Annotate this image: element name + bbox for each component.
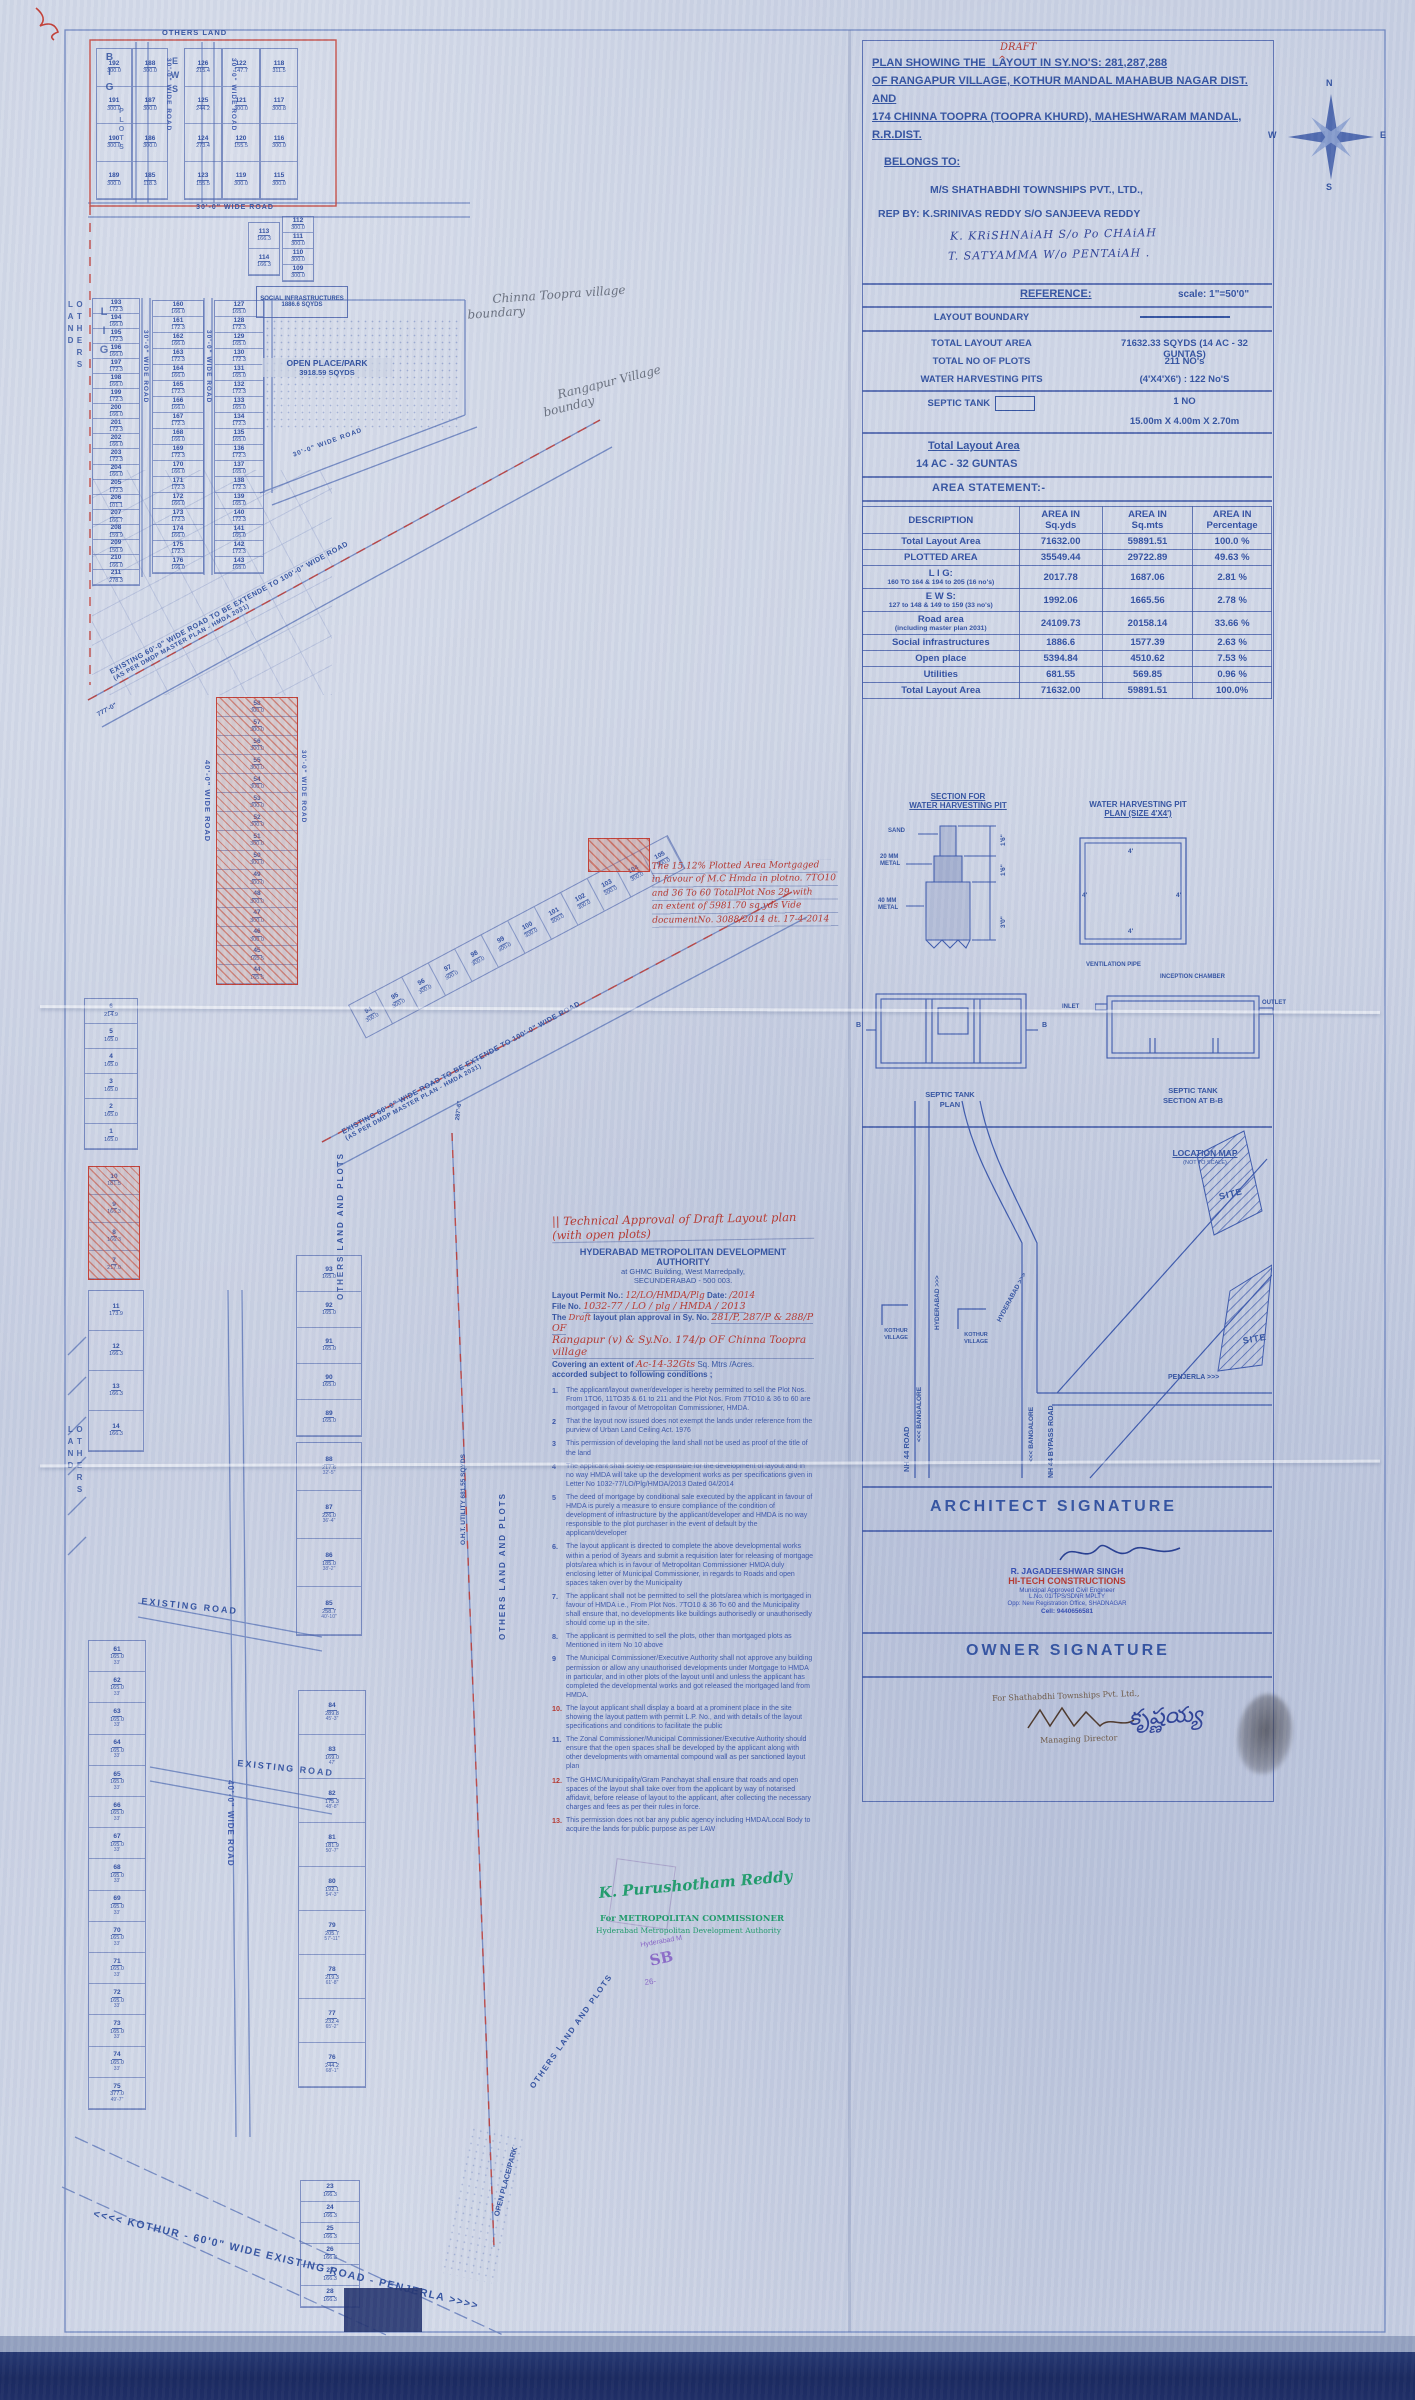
- cell-sqyds: 1992.06: [1019, 589, 1102, 612]
- plot-cell-mortgaged: 55300.0: [217, 755, 297, 774]
- plot-cell: 125244.2: [185, 87, 221, 125]
- stamp-address: Opp: New Registration Office, SHADNAGAR: [962, 1601, 1172, 1608]
- dim-1-6-a: 1'6": [1000, 834, 1007, 846]
- whp-plan-title: WATER HARVESTING PITPLAN (SIZE 4'X4'): [1058, 800, 1218, 818]
- plot-cell: 162166.0: [153, 333, 203, 349]
- dim-1-6-b: 1'6": [1000, 864, 1007, 876]
- plot-cell: 25166.3: [301, 2223, 359, 2244]
- hmda-condition-item: 5 The deed of mortgage by conditional sa…: [552, 1493, 814, 1538]
- whp-section-title: SECTION FORWATER HARVESTING PIT: [878, 792, 1038, 810]
- plot-strip-top3: 126215.4125244.2124273.4123155.5: [184, 48, 222, 200]
- stamp-name: R. JAGADEESHWAR SINGH: [962, 1566, 1172, 1576]
- plot-cell: 81181.950'-7": [299, 1823, 365, 1867]
- social-infrastructure-block: SOCIAL INFRASTRUCTURES 1886.6 SQYDS: [256, 286, 348, 318]
- plot-cell: 93165.0: [297, 1256, 361, 1292]
- plot-cell: 77232.465'-2": [299, 1999, 365, 2043]
- plot-cell-mortgaged: 10181.5: [89, 1167, 139, 1195]
- plot-cell-mortgaged: 58300.0: [217, 698, 297, 717]
- owner-signature-mark: [1022, 1702, 1142, 1736]
- whp-dim-top: 4': [1128, 848, 1133, 855]
- ref-line-2: [862, 306, 1272, 308]
- plot-cell: 68165.033': [89, 1859, 145, 1890]
- as-line-2: [862, 500, 1272, 502]
- others-land-top-label: OTHERS LAND: [162, 28, 227, 37]
- dark-block-bottom: [344, 2288, 422, 2332]
- cell-sqmts: 4510.62: [1102, 651, 1192, 667]
- plot-cell-mortgaged: 51300.0: [217, 831, 297, 850]
- ventilation-pipe-label: VENTILATION PIPE: [1086, 962, 1141, 968]
- cell-sqmts: 569.85: [1102, 667, 1192, 683]
- condition-number: 9: [552, 1654, 566, 1699]
- hmda-conditions-intro: accorded subject to following conditions…: [552, 1370, 814, 1379]
- area-statement-heading: AREA STATEMENT:-: [932, 482, 1046, 494]
- cell-sqyds: 24109.73: [1019, 612, 1102, 635]
- total-layout-area-subtitle: Total Layout Area: [928, 440, 1020, 452]
- utility-label: O.H.T. UTILITY 681.55 SQYDS: [460, 1370, 467, 1545]
- plot-cell: 73165.033': [89, 2015, 145, 2046]
- ref-line-4: [862, 390, 1272, 392]
- cell-sqmts: 1665.56: [1102, 589, 1192, 612]
- condition-number: 11.: [552, 1735, 566, 1771]
- plot-cell: 136172.3: [215, 445, 263, 461]
- park-value: 3918.59 SQYDS: [262, 368, 392, 377]
- plot-cell: 128172.3: [215, 317, 263, 333]
- plot-cell: 75377.049'-7": [89, 2078, 145, 2109]
- ref-row-whp: WATER HARVESTING PITS(4'X4'X6') : 122 No…: [864, 374, 1270, 385]
- hmda-condition-item: 1. The applicant/layout owner/developer …: [552, 1386, 814, 1413]
- table-row: Total Layout Area 71632.00 59891.51 100.…: [863, 683, 1272, 699]
- condition-number: 8.: [552, 1632, 566, 1650]
- compass-e: E: [1380, 130, 1386, 140]
- plot-cell: 112300.0: [283, 217, 313, 233]
- plot-cell: 116300.0: [261, 124, 297, 162]
- architect-signature-mark: [1052, 1536, 1192, 1568]
- plot-cell: 71165.033': [89, 1953, 145, 1984]
- architect-stamp: R. JAGADEESHWAR SINGH HI-TECH CONSTRUCTI…: [962, 1566, 1172, 1616]
- septic-section-drawing: [1095, 978, 1273, 1078]
- condition-text: This permission of developing the land s…: [566, 1439, 814, 1457]
- extent-units: Sq. Mtrs /Acres.: [697, 1360, 754, 1369]
- road-40-label-bottom: 40'-0" WIDE ROAD: [226, 1780, 235, 2000]
- condition-number: 10.: [552, 1704, 566, 1731]
- road-40-label: 40'-0" WIDE ROAD: [203, 760, 212, 930]
- plot-cell: 129165.0: [215, 333, 263, 349]
- plot-cell-mortgaged: 8166.3: [89, 1223, 139, 1251]
- arch-line-bottom: [862, 1530, 1272, 1532]
- plot-cell: 119300.0: [223, 162, 259, 200]
- cell-description: L I G:160 TO 164 & 194 to 205 (16 no's): [863, 566, 1020, 589]
- plot-cell: 118311.5: [261, 49, 297, 87]
- condition-number: 5: [552, 1493, 566, 1538]
- plot-cell-mortgaged: 49300.0: [217, 870, 297, 889]
- cell-sqmts: 1577.39: [1102, 635, 1192, 651]
- plot-cell: 90165.0: [297, 1364, 361, 1400]
- hmda-condition-item: 12. The GHMC/Municipality/Gram Panchayat…: [552, 1776, 814, 1812]
- condition-text: The deed of mortgage by conditional sale…: [566, 1493, 814, 1538]
- plot-cell: 165172.3: [153, 381, 203, 397]
- title-line3: 174 CHINNA TOOPRA (TOOPRA KHURD), MAHESH…: [872, 108, 1268, 144]
- boundary-line-symbol: [1140, 316, 1230, 318]
- plot-cell: 123155.5: [185, 162, 221, 200]
- ref-row-boundary: LAYOUT BOUNDARY: [864, 312, 1270, 323]
- hmda-condition-item: 7. The applicant shall not be permitted …: [552, 1592, 814, 1628]
- plot-cell: 186300.0: [133, 124, 167, 162]
- metal40-label: 40 MMMETAL: [878, 898, 898, 911]
- plot-strip-11-14: 11173.912166.313166.314166.3: [88, 1290, 144, 1452]
- reference-scale: scale: 1"=50'0": [1178, 289, 1249, 300]
- septic-plan-drawing: [866, 978, 1046, 1084]
- plot-cell: 6214.9: [85, 999, 137, 1024]
- mortgage-note-line: documentNo. 3088/2014 dt. 17-4-2014: [652, 913, 838, 928]
- stamp-title: Municipal Approved Civil Engineer: [962, 1587, 1172, 1594]
- nh44-bypass-label: NH 44 BYPASS ROAD: [1048, 1348, 1055, 1478]
- fold-shadow: [848, 30, 851, 2332]
- hmda-condition-item: 2 That the layout now issued does not ex…: [552, 1417, 814, 1435]
- plot-cell: 121300.0: [223, 87, 259, 125]
- compass-icon: [1286, 92, 1376, 182]
- plot-cell-mortgaged: 52300.0: [217, 812, 297, 831]
- section-marker-b-right: B: [1042, 1022, 1047, 1029]
- permit-value: 12/LO/HMDA/Plg: [625, 1291, 704, 1301]
- title-line2: OF RANGAPUR VILLAGE, KOTHUR MANDAL MAHAB…: [872, 72, 1268, 108]
- condition-number: 12.: [552, 1776, 566, 1812]
- sy-draft: Draft: [568, 1313, 591, 1323]
- plot-cell: 168166.0: [153, 429, 203, 445]
- plot-cell: 2165.0: [85, 1099, 137, 1124]
- condition-text: The applicant/layout owner/developer is …: [566, 1386, 814, 1413]
- big-plots-label: BIG: [104, 52, 115, 192]
- cell-percentage: 0.96 %: [1193, 667, 1272, 683]
- plot-cell: 67165.033': [89, 1828, 145, 1859]
- cell-sqyds: 1886.6: [1019, 635, 1102, 651]
- plot-cell: 167172.3: [153, 413, 203, 429]
- cell-sqyds: 5394.84: [1019, 651, 1102, 667]
- table-row: L I G:160 TO 164 & 194 to 205 (16 no's) …: [863, 566, 1272, 589]
- owner-signature-heading: OWNER SIGNATURE: [966, 1642, 1170, 1660]
- owner-line-top: [862, 1632, 1272, 1634]
- plot-cell: 120155.5: [223, 124, 259, 162]
- plot-cell: 187300.0: [133, 87, 167, 125]
- plot-cell-mortgaged: 45165.5: [217, 946, 297, 965]
- hmda-condition-item: 9 The Municipal Commissioner/Executive A…: [552, 1654, 814, 1699]
- cell-percentage: 7.53 %: [1193, 651, 1272, 667]
- cell-percentage: 100.0 %: [1193, 534, 1272, 550]
- plot-cell: 115300.0: [261, 162, 297, 200]
- mortgage-note-line: and 36 To 60 TotalPlot Nos 29 with: [652, 886, 838, 901]
- plot-strip-1-6: 6214.95165.04165.03165.02165.01165.0: [84, 998, 138, 1150]
- ref-row-septic-dims: 15.00m X 4.00m X 2.70m: [864, 416, 1270, 427]
- cell-sqmts: 59891.51: [1102, 683, 1192, 699]
- hmda-extent-row: Covering an extent of Ac-14-32Gts Sq. Mt…: [552, 1359, 814, 1370]
- hmda-condition-item: 4 The applicant shall solely be responsi…: [552, 1462, 814, 1489]
- file-label: File No.: [552, 1302, 581, 1311]
- cell-sqmts: 1687.06: [1102, 566, 1192, 589]
- condition-number: 7.: [552, 1592, 566, 1628]
- plot-cell: 135165.0: [215, 429, 263, 445]
- ref-line-3: [862, 330, 1272, 332]
- others-land-left-label2: OTHERS LAND: [66, 1425, 84, 1535]
- table-row: Road area(including master plan 2031) 24…: [863, 612, 1272, 635]
- cell-percentage: 2.63 %: [1193, 635, 1272, 651]
- plot-cell: 82175.348'-8": [299, 1779, 365, 1823]
- road-30-label-horizontal: 30'-0" WIDE ROAD: [150, 204, 320, 211]
- plot-cell: 72165.033': [89, 1984, 145, 2015]
- plot-cell: 62165.033': [89, 1672, 145, 1703]
- cell-percentage: 100.0%: [1193, 683, 1272, 699]
- plot-cell-mortgaged: 7217.0: [89, 1251, 139, 1279]
- cell-percentage: 2.81 %: [1193, 566, 1272, 589]
- sy-text: The: [552, 1313, 566, 1322]
- cell-sqyds: 35549.44: [1019, 550, 1102, 566]
- condition-text: The applicant shall solely be responsibl…: [566, 1462, 814, 1489]
- others-land-left-label: OTHERS LAND: [66, 300, 84, 410]
- section-marker-b-left: B: [856, 1022, 861, 1029]
- plot-cell: 161172.3: [153, 317, 203, 333]
- plot-cell: 133165.0: [215, 397, 263, 413]
- table-row: PLOTTED AREA 35549.44 29722.89 49.63 %: [863, 550, 1272, 566]
- ref-line-bottom: [862, 432, 1272, 434]
- open-park-label-block: OPEN PLACE/PARK 3918.59 SQYDS: [262, 358, 392, 377]
- cell-description: Road area(including master plan 2031): [863, 612, 1020, 635]
- plot-strip-mortgaged-7-10: 10181.59166.38166.37217.0: [88, 1166, 140, 1280]
- sy-text2: layout plan approval in Sy. No.: [593, 1313, 709, 1322]
- plot-cell-mortgaged: 48300.0: [217, 889, 297, 908]
- col-description: DESCRIPTION: [863, 507, 1020, 534]
- plot-cell-mortgaged: 54300.0: [217, 774, 297, 793]
- plot-cell: 110300.0: [283, 249, 313, 265]
- col-percentage: AREA INPercentage: [1193, 507, 1272, 534]
- plot-cell-mortgaged: 56300.0: [217, 736, 297, 755]
- hmda-condition-item: 8. The applicant is permitted to sell th…: [552, 1632, 814, 1650]
- table-header-row: DESCRIPTION AREA INSq.yds AREA INSq.mts …: [863, 507, 1272, 534]
- plot-strip-89-93: 93165.092165.091165.090165.089165.0: [296, 1255, 362, 1437]
- plot-cell-mortgaged: 53300.0: [217, 793, 297, 812]
- compass-w: W: [1268, 130, 1277, 140]
- plot-strip-top2: 188300.0187300.0186300.0185118.3: [132, 48, 168, 200]
- company-name: M/S SHATHABDHI TOWNSHIPS PVT., LTD.,: [930, 184, 1143, 196]
- whp-dim-bottom: 4': [1128, 928, 1133, 935]
- cell-sqyds: 2017.78: [1019, 566, 1102, 589]
- kothur-village-label-2: KOTHURVILLAGE: [954, 1332, 998, 1345]
- approved-for-label: For METROPOLITAN COMMISSIONER: [600, 1914, 784, 1924]
- plot-strip-76-84: 84289.845'-3"83169.047'82175.348'-8"8118…: [298, 1690, 366, 2088]
- mortgage-hatch-box: [588, 838, 650, 872]
- plot-strip-mortgaged-36-60: 58300.057300.056300.055300.054300.053300…: [216, 697, 298, 985]
- hmda-condition-item: 6. The layout applicant is directed to c…: [552, 1542, 814, 1587]
- plot-cell: 114166.3: [249, 249, 279, 275]
- cell-description: Open place: [863, 651, 1020, 667]
- plot-cell: 69165.033': [89, 1891, 145, 1922]
- stamp-phone: Cell: 9440656581: [962, 1608, 1172, 1616]
- table-row: Open place 5394.84 4510.62 7.53 %: [863, 651, 1272, 667]
- footer-strip-dark: [0, 2352, 1415, 2400]
- plot-cell: 169172.3: [153, 445, 203, 461]
- area-statement-table: DESCRIPTION AREA INSq.yds AREA INSq.mts …: [862, 506, 1272, 699]
- bangalore-label-1: <<< BANGALORE: [916, 1358, 923, 1442]
- plot-cell: 111300.0: [283, 233, 313, 249]
- cell-percentage: 33.66 %: [1193, 612, 1272, 635]
- plot-cell: 74165.033': [89, 2047, 145, 2078]
- hmda-village-row: Rangapur (v) & Sy.No. 174/p OF Chinna To…: [552, 1334, 814, 1359]
- cell-sqmts: 20158.14: [1102, 612, 1192, 635]
- whp-dim-left: 4': [1082, 892, 1087, 899]
- col-sqmts: AREA INSq.mts: [1102, 507, 1192, 534]
- plot-cell: 130172.3: [215, 349, 263, 365]
- cell-sqyds: 681.55: [1019, 667, 1102, 683]
- arch-line-top: [862, 1486, 1272, 1488]
- plot-cell: 1165.0: [85, 1124, 137, 1149]
- metal20-label: 20 MMMETAL: [880, 854, 900, 867]
- plot-cell: 109300.0: [283, 265, 313, 281]
- owner-line-bottom: [862, 1676, 1272, 1678]
- condition-number: 13.: [552, 1816, 566, 1834]
- plot-cell: 66165.033': [89, 1797, 145, 1828]
- condition-text: The applicant shall not be permitted to …: [566, 1592, 814, 1628]
- date-label: Date:: [707, 1291, 727, 1300]
- col-sqyds: AREA INSq.yds: [1019, 507, 1102, 534]
- hmda-condition-item: 11. The Zonal Commissioner/Municipal Com…: [552, 1735, 814, 1771]
- cell-description: Social infrastructures: [863, 635, 1020, 651]
- septic-tank-symbol: [995, 396, 1035, 411]
- cell-description: Total Layout Area: [863, 683, 1020, 699]
- architect-signature-heading: ARCHITECT SIGNATURE: [930, 1498, 1177, 1516]
- plot-cell: 86185.038'-2": [297, 1539, 361, 1587]
- plot-cell: 78219.361'-8": [299, 1955, 365, 1999]
- approved-org-label: Hyderabad Metropolitan Development Autho…: [596, 1926, 781, 1935]
- road-30-label-topblock2: 30'-0" WIDE ROAD: [230, 58, 237, 178]
- date-value: /2014: [729, 1291, 755, 1301]
- plot-cell-mortgaged: 46300.0: [217, 927, 297, 946]
- cell-sqyds: 71632.00: [1019, 683, 1102, 699]
- plot-cell: 3165.0: [85, 1074, 137, 1099]
- table-row: Utilities 681.55 569.85 0.96 %: [863, 667, 1272, 683]
- plot-cell: 124273.4: [185, 124, 221, 162]
- social-value: 1886.6 SQYDS: [281, 302, 322, 308]
- plot-cell-mortgaged: 9166.3: [89, 1195, 139, 1223]
- condition-text: The applicant is permitted to sell the p…: [566, 1632, 814, 1650]
- hmda-condition-item: 3 This permission of developing the land…: [552, 1439, 814, 1457]
- hmda-permit-row: Layout Permit No.: 12/LO/HMDA/Plg Date: …: [552, 1291, 814, 1301]
- outlet-label: OUTLET: [1262, 1000, 1286, 1006]
- cell-sqmts: 59891.51: [1102, 534, 1192, 550]
- plot-cell: 131165.0: [215, 365, 263, 381]
- plot-cell: 89165.0: [297, 1400, 361, 1436]
- condition-text: The Zonal Commissioner/Municipal Commiss…: [566, 1735, 814, 1771]
- plot-cell-mortgaged: 50300.0: [217, 851, 297, 870]
- plot-cell-mortgaged: 44165.5: [217, 965, 297, 984]
- kothur-village-label-1: KOTHURVILLAGE: [874, 1328, 918, 1341]
- purple-stamp-date: 26-: [644, 1976, 657, 1987]
- cell-sqmts: 29722.89: [1102, 550, 1192, 566]
- plot-cell: 160166.0: [153, 301, 203, 317]
- plot-cell: 79205.757'-11": [299, 1911, 365, 1955]
- plot-cell: 5165.0: [85, 1024, 137, 1049]
- sand-label: SAND: [888, 828, 905, 834]
- road-30-label-mid: 30'-0" WIDE ROAD: [300, 750, 307, 910]
- penjerla-label: PENJERLA >>>: [1168, 1374, 1219, 1381]
- road-30-label-topblock: 30'-0" WIDE ROAD: [165, 58, 172, 178]
- plot-cell: 117300.8: [261, 87, 297, 125]
- plot-cell: 91165.0: [297, 1328, 361, 1364]
- park-label: OPEN PLACE/PARK: [262, 358, 392, 368]
- plot-cell: 84289.845'-3": [299, 1691, 365, 1735]
- hmda-condition-item: 10. The layout applicant shall display a…: [552, 1704, 814, 1731]
- plot-cell: 126215.4: [185, 49, 221, 87]
- stamp-license: L.No. 01/TPS/SDNR MPLTY: [962, 1594, 1172, 1601]
- plot-cell: 4165.0: [85, 1049, 137, 1074]
- plot-cell: 61165.033': [89, 1641, 145, 1672]
- plot-strip-top5: 118311.5117300.8116300.0115300.0: [260, 48, 298, 200]
- title-line1: PLAN SHOWING THE LAYOUT IN SY.NO'S: 281,…: [872, 54, 1268, 72]
- condition-text: The layout applicant shall display a boa…: [566, 1704, 814, 1731]
- plot-cell: 166166.0: [153, 397, 203, 413]
- plot-cell: 11173.9: [89, 1291, 143, 1331]
- plot-cell: 134172.3: [215, 413, 263, 429]
- plot-cell: 64165.033': [89, 1735, 145, 1766]
- condition-number: 1.: [552, 1386, 566, 1413]
- reference-heading: REFERENCE:: [1020, 288, 1092, 300]
- cell-description: E W S:127 to 148 & 149 to 159 (33 no's): [863, 589, 1020, 612]
- hmda-org2: at GHMC Building, West Marredpally,: [552, 1267, 814, 1276]
- condition-text: That the layout now issued does not exem…: [566, 1417, 814, 1435]
- extent-label: Covering an extent of: [552, 1360, 634, 1369]
- cell-percentage: 49.63 %: [1193, 550, 1272, 566]
- plot-cell: 12166.3: [89, 1331, 143, 1371]
- plot-cell: 14166.3: [89, 1411, 143, 1451]
- ref-row-septic: SEPTIC TANK 1 NO: [864, 396, 1270, 411]
- plot-strip-61-75: 61165.033'62165.033'63165.033'64165.033'…: [88, 1640, 146, 2110]
- owner-telugu-signature: కృష్ణయ్య: [1128, 1702, 1204, 1736]
- plots-word-label: PLOTS: [118, 108, 125, 198]
- plot-cell: 188300.0: [133, 49, 167, 87]
- plot-cell: 63165.033': [89, 1703, 145, 1734]
- permit-label: Layout Permit No.:: [552, 1291, 623, 1300]
- hmda-approval-block: || Technical Approval of Draft Layout pl…: [552, 1212, 814, 1838]
- mortgage-note: The 15.12% Plotted Area Mortgaged in fav…: [652, 859, 839, 928]
- ref-row-total-plots: TOTAL NO OF PLOTS211 NO's: [864, 356, 1270, 367]
- plot-cell: 88217.632'-5": [297, 1443, 361, 1491]
- condition-number: 4: [552, 1462, 566, 1489]
- plot-cell-mortgaged: 47300.0: [217, 908, 297, 927]
- hmda-file-row: File No. 1032-77 / LO / plg / HMDA / 201…: [552, 1301, 814, 1312]
- plot-cell: 85258.740'-10": [297, 1587, 361, 1635]
- plan-title: PLAN SHOWING THE LAYOUT IN SY.NO'S: 281,…: [872, 54, 1268, 144]
- dim-3-0: 3'0": [1000, 916, 1007, 928]
- condition-text: The Municipal Commissioner/Executive Aut…: [566, 1654, 814, 1699]
- draft-insert: DRAFT: [1000, 42, 1036, 53]
- table-row: E W S:127 to 148 & 149 to 159 (33 no's) …: [863, 589, 1272, 612]
- bangalore-label-2: <<< BANGALORE: [1028, 1378, 1035, 1462]
- as-line-1: [862, 476, 1272, 478]
- whp-dim-right: 4': [1176, 892, 1181, 899]
- hmda-sy-row: The Draft layout plan approval in Sy. No…: [552, 1312, 814, 1334]
- hmda-conditions-list: 1. The applicant/layout owner/developer …: [552, 1386, 814, 1834]
- plot-strip-top4: 122147.7121300.0120155.5119300.0: [222, 48, 260, 200]
- plot-strip-85-88: 88217.632'-5"87226.036'-4"86185.038'-2"8…: [296, 1442, 362, 1636]
- plot-cell: 122147.7: [223, 49, 259, 87]
- mortgage-note-line: in favour of M.C Hmda in plotno. 7TO10: [652, 873, 838, 888]
- plot-cell: 24166.3: [301, 2202, 359, 2223]
- others-land-plots-label2: OTHERS LAND AND PLOTS: [498, 1380, 507, 1640]
- cell-percentage: 2.78 %: [1193, 589, 1272, 612]
- plot-cell: 163172.3: [153, 349, 203, 365]
- hmda-condition-item: 13. This permission does not bar any pub…: [552, 1816, 814, 1834]
- plot-cell: 87226.036'-4": [297, 1491, 361, 1539]
- cell-description: PLOTTED AREA: [863, 550, 1020, 566]
- plot-cell: 83169.047': [299, 1735, 365, 1779]
- plot-cell: 23166.3: [301, 2181, 359, 2202]
- compass-s: S: [1326, 182, 1332, 192]
